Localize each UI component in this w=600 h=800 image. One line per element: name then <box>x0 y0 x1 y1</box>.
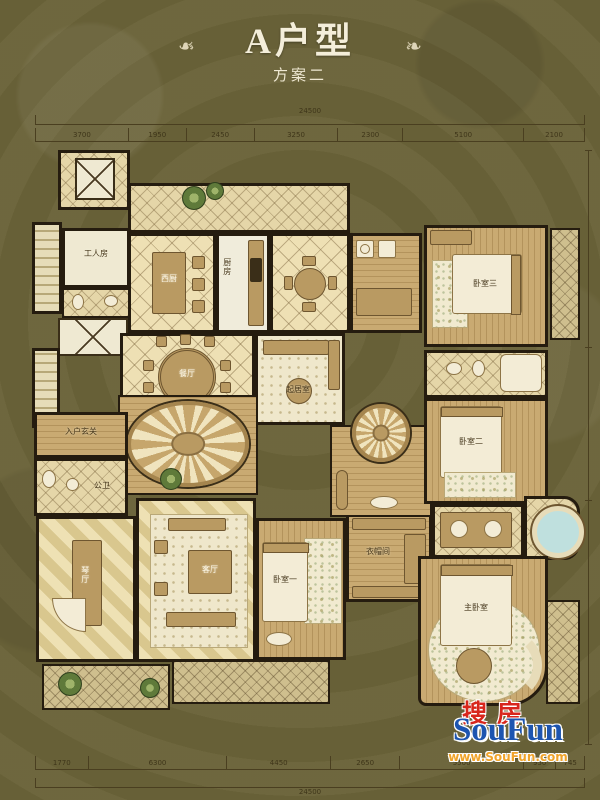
chair-icon <box>302 302 316 312</box>
room-label: 餐厅 <box>166 370 208 379</box>
chair-icon <box>284 276 293 290</box>
plant-icon <box>58 672 82 696</box>
armchair-icon <box>154 540 168 554</box>
dim-seg: 2450 <box>186 128 254 141</box>
watermark-logo: SouFun <box>428 712 588 749</box>
plant-icon <box>206 182 224 200</box>
dim-top-overall-value: 24500 <box>299 107 321 115</box>
chair-icon <box>204 336 215 347</box>
room-label: 工人房 <box>66 250 126 259</box>
room-label: 衣帽间 <box>350 548 406 557</box>
sink-icon <box>450 520 468 538</box>
chair-icon <box>156 336 167 347</box>
foyer-medallion <box>127 401 249 487</box>
desk <box>430 230 472 245</box>
chair-icon <box>143 360 154 371</box>
dim-seg: 5100 <box>402 128 523 141</box>
bed-headboard <box>263 543 309 553</box>
plant-icon <box>140 678 160 698</box>
elevator-icon <box>75 158 115 200</box>
dim-bottom-overall-value: 24500 <box>299 788 321 796</box>
room-label: 起居室 <box>268 386 328 395</box>
room-label: 主卧室 <box>448 604 504 613</box>
bench-icon <box>266 632 292 646</box>
dim-seg: 1770 <box>35 756 88 769</box>
room-label: 公卫 <box>82 482 122 491</box>
chair-icon <box>180 334 191 345</box>
plan-subtitle: 方案二 <box>0 64 600 85</box>
sink-icon <box>66 478 79 491</box>
armchair-icon <box>154 582 168 596</box>
sofa <box>263 340 329 355</box>
sofa <box>168 518 226 531</box>
toilet-icon <box>72 294 84 310</box>
dim-seg: 2650 <box>330 756 399 769</box>
dim-bottom-overall: 24500 <box>35 778 585 796</box>
kitchen-counter <box>248 240 264 326</box>
chair-icon <box>328 276 337 290</box>
dim-bottom-overall-line <box>35 778 585 788</box>
bed-headboard <box>511 255 521 315</box>
dim-top-segments: 3700 1950 2450 3250 2300 5100 2100 <box>35 128 585 142</box>
stool-icon <box>192 300 205 313</box>
dim-tick <box>585 150 592 151</box>
sink-icon <box>446 362 462 375</box>
dim-seg: 2300 <box>337 128 402 141</box>
title-block: A户型 方案二 <box>0 22 600 85</box>
room-label: 厨房 <box>222 258 231 276</box>
closet-rack <box>352 586 426 598</box>
chair-icon <box>220 382 231 393</box>
washer-drum-icon <box>360 244 370 254</box>
room-label: 入户玄关 <box>38 428 124 437</box>
plan-title: A户型 <box>0 22 600 62</box>
sofa <box>166 612 236 627</box>
room-label: 客厅 <box>188 566 232 575</box>
dim-tick <box>585 347 592 348</box>
curved-sofa <box>472 630 542 700</box>
room-label: 琴厅 <box>80 566 89 584</box>
dim-right-line <box>588 150 589 745</box>
toilet-icon <box>472 360 485 377</box>
stool-icon <box>192 278 205 291</box>
entry-corridor <box>128 183 350 233</box>
staircase <box>32 222 62 314</box>
side-balcony <box>550 228 580 340</box>
dim-seg: 2100 <box>523 128 585 141</box>
elevator-icon <box>58 318 128 356</box>
bathtub-icon <box>500 354 542 392</box>
sofa <box>328 340 340 390</box>
room-label: 西厨 <box>150 275 188 284</box>
toilet-icon <box>42 470 56 488</box>
breakfast-table <box>294 268 326 300</box>
room-label: 卧室一 <box>264 576 306 585</box>
cabinet <box>336 470 348 510</box>
soufun-watermark: 搜房 SouFun www.SouFun.com <box>428 698 588 772</box>
bedroom2-rug <box>444 472 516 498</box>
sink-icon <box>104 295 118 307</box>
dim-top-overall-line <box>35 115 585 125</box>
room-label: 卧室二 <box>444 438 498 447</box>
dim-seg: 4450 <box>226 756 330 769</box>
chair-icon <box>143 382 154 393</box>
bed-headboard <box>441 565 513 576</box>
bench-icon <box>370 496 398 509</box>
chair-icon <box>220 360 231 371</box>
stove-icon <box>250 258 262 282</box>
dim-top-overall: 24500 <box>35 107 585 125</box>
dim-tick <box>585 500 592 501</box>
dim-seg: 6300 <box>88 756 227 769</box>
round-tub-icon <box>532 506 584 558</box>
room-label: 卧室三 <box>458 280 512 289</box>
shelf <box>356 288 412 316</box>
plant-icon <box>182 186 206 210</box>
stool-icon <box>192 256 205 269</box>
washer-icon <box>378 240 396 258</box>
chair-icon <box>302 256 316 266</box>
hall-medallion <box>352 404 410 462</box>
floorplan-sheet: ❧ ❧ A户型 方案二 24500 3700 1950 2450 3250 23… <box>0 0 600 800</box>
bed-headboard <box>441 407 503 417</box>
plant-icon <box>160 468 182 490</box>
dim-seg: 1950 <box>128 128 186 141</box>
bedroom1-rug <box>304 538 342 624</box>
balcony <box>172 660 330 704</box>
dim-seg: 3250 <box>254 128 338 141</box>
sink-icon <box>484 520 502 538</box>
watermark-url: www.SouFun.com <box>428 750 588 764</box>
terrace <box>546 600 580 704</box>
closet-rack <box>352 518 426 530</box>
dim-seg: 3700 <box>35 128 128 141</box>
